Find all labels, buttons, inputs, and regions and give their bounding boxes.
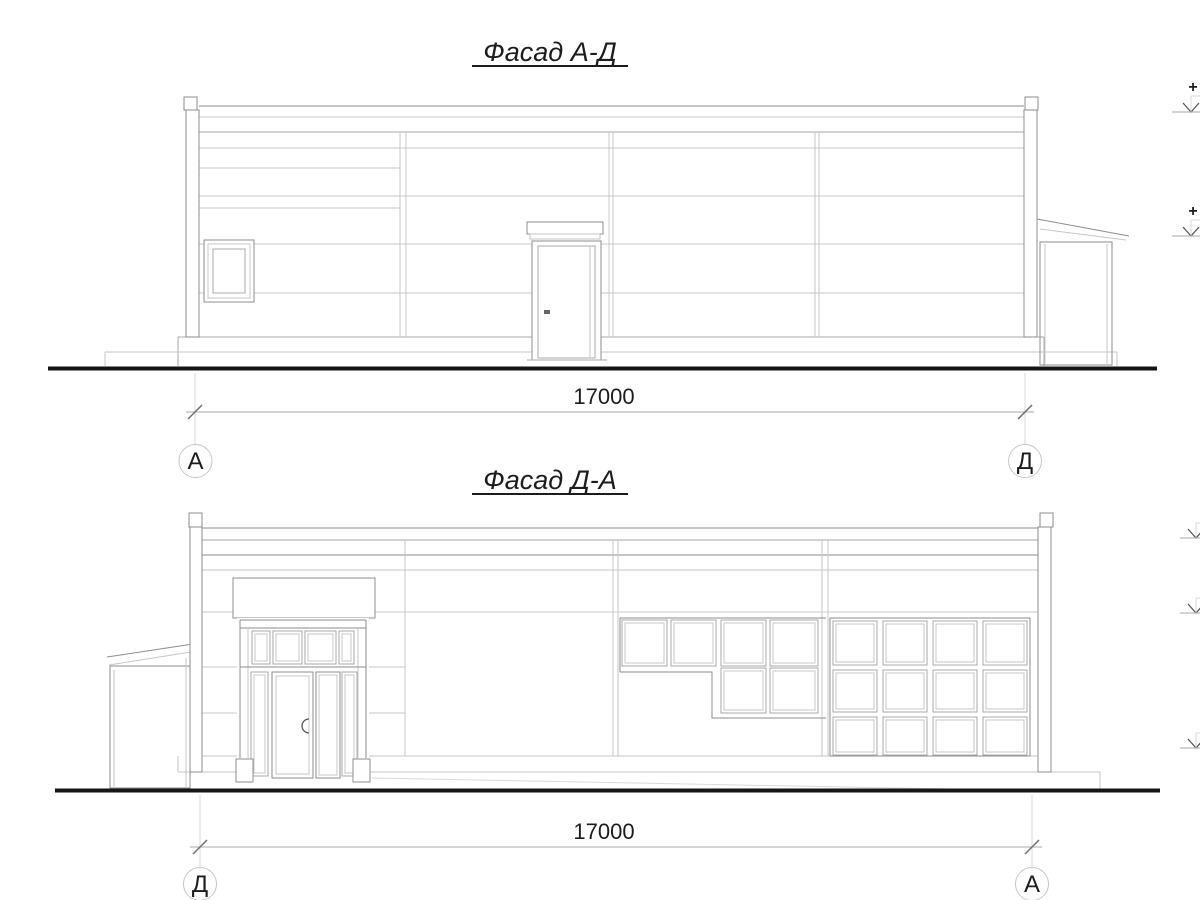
elevation-plus-sign: +	[1188, 79, 1197, 96]
facade-da-title: Фасад Д-А	[483, 465, 616, 495]
window-grid-right	[830, 618, 1030, 756]
entrance-door	[527, 222, 607, 360]
annex-lean-to	[1037, 219, 1129, 365]
facade-ad-building	[48, 97, 1157, 369]
wall-panel-seams	[199, 132, 1024, 337]
entrance-portal	[233, 578, 375, 783]
portal-fascia	[233, 578, 375, 618]
door-canopy	[527, 222, 603, 234]
pilaster-right	[1038, 527, 1051, 772]
pilaster-cap-left	[189, 513, 202, 527]
architectural-drawing-sheet: Фасад А-Д	[0, 0, 1200, 900]
portal-base-left	[236, 759, 253, 782]
annex-lean-to	[107, 644, 193, 788]
facade-ad-elevation: Фасад А-Д	[48, 37, 1200, 478]
elevation-marker-lower: +	[1172, 203, 1200, 236]
dimension-value: 17000	[573, 819, 634, 844]
axis-label-right: А	[1024, 871, 1040, 898]
elevation-marker-top	[1180, 523, 1200, 538]
axis-label-right: Д	[1017, 448, 1033, 475]
pilaster-cap-right	[1040, 513, 1053, 527]
dimension-value: 17000	[573, 384, 634, 409]
window	[204, 240, 254, 302]
pilaster-left	[190, 527, 202, 772]
elevation-marker-middle	[1180, 598, 1200, 613]
facades-drawing-canvas: Фасад А-Д	[0, 0, 1200, 900]
axis-label-left: Д	[192, 871, 208, 898]
plinth	[105, 337, 1117, 366]
facade-da-elevation: Фасад Д-А	[55, 465, 1200, 900]
facade-ad-title: Фасад А-Д	[483, 37, 616, 67]
pilaster-cap-right	[1025, 97, 1038, 110]
portal-base-right	[353, 759, 370, 782]
pilaster-left	[186, 110, 199, 337]
elevation-marker-upper: +	[1172, 79, 1200, 112]
pilaster-cap-left	[184, 97, 197, 110]
window-band-middle	[620, 618, 826, 718]
ramp-line	[372, 778, 950, 789]
facade-da-building	[55, 513, 1160, 791]
parapet-lines	[199, 106, 1024, 148]
door-frame	[532, 241, 601, 360]
door-handle	[544, 310, 550, 314]
elevation-plus-sign: +	[1188, 203, 1197, 220]
dimension-chain: 17000 Д А	[184, 795, 1049, 900]
dimension-chain: 17000 А Д	[179, 373, 1042, 478]
elevation-marker-bottom	[1180, 733, 1200, 748]
axis-label-left: А	[187, 448, 203, 475]
pilaster-right	[1024, 110, 1037, 337]
